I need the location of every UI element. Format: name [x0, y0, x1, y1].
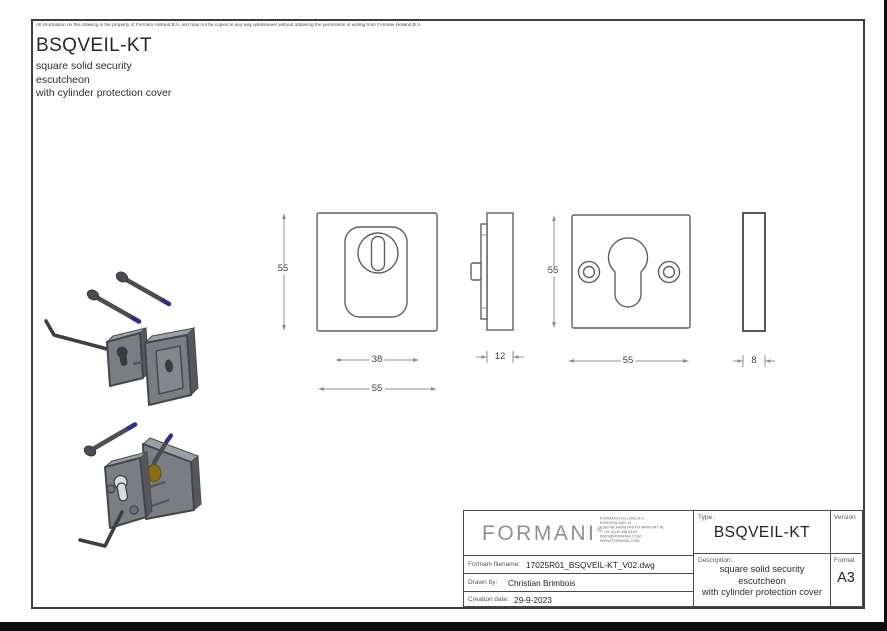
company-address: FORMANI HOLLAND B.V. EUROPALAAN 12 6199 … — [600, 517, 665, 544]
side-view-escutcheon — [733, 205, 798, 400]
dim-label-height: 55 — [276, 264, 291, 274]
drawn-by-label: Drawn by: — [468, 579, 497, 586]
dim-label-thickness-8: 8 — [749, 356, 758, 366]
screw-hole — [107, 485, 115, 493]
dim-label-thickness-12: 12 — [493, 352, 508, 362]
filename-value: 17025R01_BSQVEIL-KT_V02.dwg — [526, 560, 655, 570]
filename-label: Formani filename: — [468, 561, 520, 568]
side-view-with-cover — [458, 205, 533, 400]
version-label: Version — [834, 514, 856, 521]
front-view-with-cover — [270, 205, 445, 400]
cylinder-stub — [471, 263, 481, 280]
cover-side-outline — [487, 213, 513, 330]
front-view-escutcheon — [540, 205, 715, 400]
plate-side-outline — [743, 213, 765, 331]
product-description-line: escutcheon — [36, 74, 171, 88]
scan-edge-bottom — [0, 622, 887, 631]
type-cell: Type : BSQVEIL-KT — [693, 511, 830, 553]
screw-shaft — [96, 297, 133, 318]
description-cell: Description: square solid security escut… — [693, 553, 830, 607]
title-block: FORMANI® FORMANI HOLLAND B.V. EUROPALAAN… — [463, 510, 863, 607]
product-description: square solid security escutcheon with cy… — [36, 60, 171, 101]
dim-label-plate-width: 55 — [621, 356, 636, 366]
format-cell: Format A3 — [830, 553, 861, 607]
drawn-by-row: Drawn by: Christian Brimbois — [464, 573, 693, 591]
filename-row: Formani filename: 17025R01_BSQVEIL-KT_V0… — [464, 555, 693, 573]
screw-tip-blue — [167, 436, 171, 442]
plate-side-outline — [481, 224, 487, 319]
screw-tip-blue — [129, 425, 135, 429]
hex-key-icon — [46, 321, 111, 350]
exploded-view-front-isometric — [35, 262, 235, 422]
version-cell: Version — [830, 511, 861, 553]
screw-shaft — [125, 279, 163, 301]
copyright-disclaimer: All information on this drawing is the p… — [36, 23, 421, 28]
screw-hole-inner — [664, 267, 675, 278]
screw-tip-blue — [163, 301, 169, 305]
screw-tip-blue — [133, 318, 139, 322]
type-label: Type : — [698, 514, 716, 521]
dim-label-plate-height: 55 — [546, 266, 561, 276]
drawn-by-value: Christian Brimbois — [508, 578, 575, 588]
description-label: Description: — [698, 557, 732, 564]
dim-label-width: 55 — [370, 384, 385, 394]
creation-date-row: Creation date: 29-9-2023 — [464, 591, 693, 607]
product-description-line: square solid security — [36, 60, 171, 74]
logo-cell: FORMANI® FORMANI HOLLAND B.V. EUROPALAAN… — [464, 511, 693, 555]
format-label: Format — [834, 557, 855, 564]
creation-date-value: 29-9-2023 — [514, 595, 552, 605]
screw-hole — [130, 506, 138, 514]
exploded-view-rear-isometric — [55, 418, 265, 593]
dim-label-cover-width: 38 — [370, 355, 385, 365]
type-value: BSQVEIL-KT — [694, 524, 830, 542]
cover-slot — [372, 237, 385, 271]
description-text: square solid security escutcheon with cy… — [694, 564, 830, 599]
product-code-title: BSQVEIL-KT — [36, 35, 152, 57]
screw-shaft — [93, 428, 129, 449]
creation-date-label: Creation date: — [468, 596, 509, 603]
format-value: A3 — [831, 570, 861, 586]
drawing-sheet: All information on this drawing is the p… — [0, 0, 887, 631]
formani-logo: FORMANI® — [482, 522, 604, 546]
screw-hole-inner — [584, 267, 595, 278]
product-description-line: with cylinder protection cover — [36, 87, 171, 101]
